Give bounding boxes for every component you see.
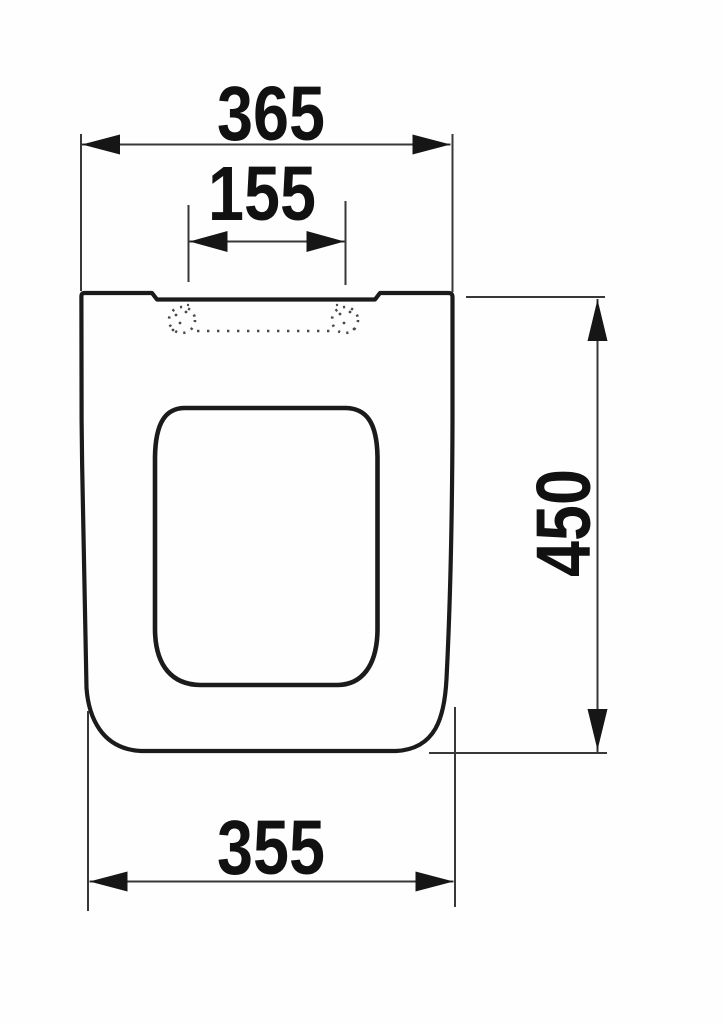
svg-text:365: 365 (217, 71, 325, 157)
svg-text:155: 155 (208, 151, 316, 237)
svg-text:450: 450 (521, 469, 607, 577)
svg-text:355: 355 (217, 805, 325, 891)
